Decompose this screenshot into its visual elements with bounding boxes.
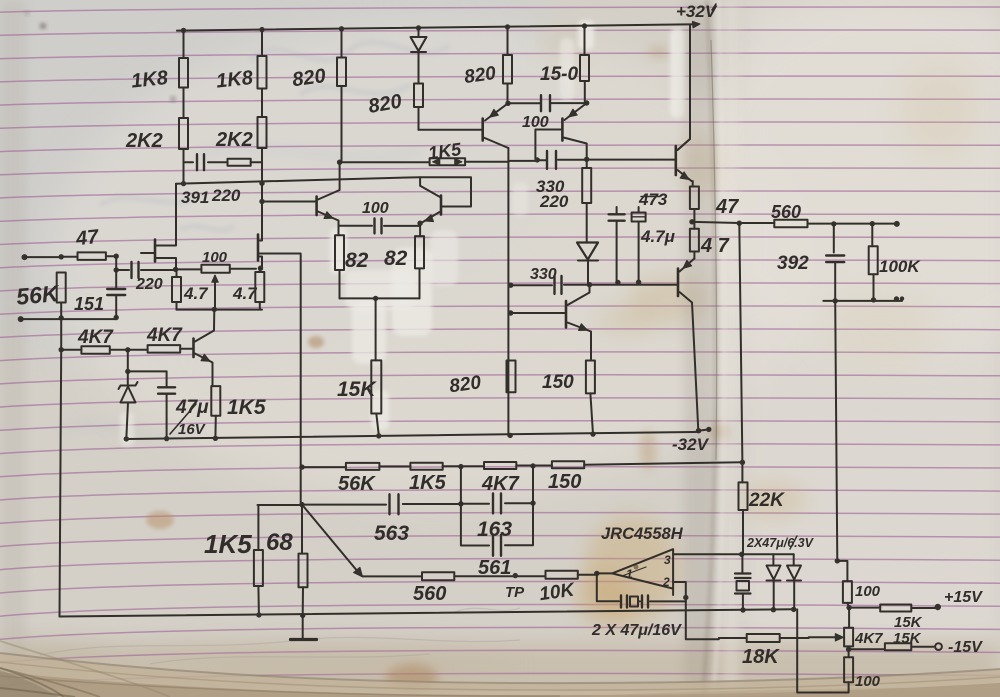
svg-text:+15V: +15V — [944, 589, 983, 606]
svg-text:22K: 22K — [748, 490, 785, 511]
svg-text:1K5: 1K5 — [227, 396, 266, 419]
svg-text:82: 82 — [384, 247, 408, 270]
svg-text:-15V: -15V — [948, 639, 983, 656]
svg-text:15-0: 15-0 — [540, 64, 578, 85]
svg-text:100: 100 — [855, 673, 881, 690]
svg-text:330: 330 — [530, 266, 557, 283]
svg-text:15K: 15K — [893, 630, 922, 647]
svg-text:1K5: 1K5 — [204, 529, 252, 559]
svg-text:473: 473 — [638, 190, 668, 209]
svg-text:100K: 100K — [879, 257, 921, 276]
svg-text:-32V: -32V — [672, 435, 710, 454]
svg-text:820: 820 — [448, 372, 483, 397]
svg-text:68: 68 — [266, 529, 293, 556]
svg-text:151: 151 — [74, 294, 104, 314]
svg-text:4K7: 4K7 — [481, 473, 520, 495]
svg-text:563: 563 — [374, 522, 409, 545]
svg-text:56K: 56K — [338, 473, 376, 495]
svg-text:16V: 16V — [178, 421, 207, 438]
svg-text:4K7: 4K7 — [77, 327, 114, 348]
svg-text:220: 220 — [211, 186, 241, 205]
svg-text:1K5: 1K5 — [409, 472, 447, 494]
svg-text:560: 560 — [413, 583, 446, 605]
svg-text:4.7: 4.7 — [183, 284, 209, 303]
svg-text:82: 82 — [345, 249, 369, 272]
svg-text:4 7: 4 7 — [700, 235, 730, 257]
svg-text:100: 100 — [362, 200, 389, 217]
svg-text:2: 2 — [662, 575, 670, 589]
svg-text:4.7: 4.7 — [232, 284, 258, 303]
svg-text:1K8: 1K8 — [215, 67, 255, 93]
svg-text:100: 100 — [202, 249, 228, 266]
svg-text:56K: 56K — [15, 280, 61, 310]
svg-text:220: 220 — [539, 192, 569, 211]
svg-text:1K8: 1K8 — [130, 67, 170, 93]
svg-text:150: 150 — [548, 471, 581, 493]
svg-text:560: 560 — [771, 202, 801, 222]
svg-text:820: 820 — [463, 63, 498, 88]
svg-text:3: 3 — [664, 553, 671, 567]
svg-text:47: 47 — [715, 196, 739, 218]
svg-text:163: 163 — [477, 518, 512, 541]
svg-text:4K7: 4K7 — [146, 325, 183, 346]
svg-text:820: 820 — [291, 65, 327, 91]
svg-text:2X47μ/6.3V: 2X47μ/6.3V — [746, 536, 815, 550]
svg-text:TP: TP — [505, 584, 525, 601]
svg-text:JRC4558H: JRC4558H — [601, 525, 684, 543]
svg-text:47: 47 — [74, 226, 100, 250]
svg-text:150: 150 — [542, 372, 574, 393]
svg-text:100: 100 — [855, 583, 881, 600]
svg-text:220: 220 — [135, 276, 163, 293]
svg-text:391: 391 — [181, 188, 209, 207]
svg-text:+32V: +32V — [676, 2, 718, 21]
svg-text:2K2: 2K2 — [125, 130, 163, 152]
svg-text:4K7: 4K7 — [854, 630, 883, 647]
svg-text:15K: 15K — [894, 614, 923, 631]
svg-text:4.7μ: 4.7μ — [640, 227, 676, 246]
svg-text:2 X 47μ/16V: 2 X 47μ/16V — [591, 622, 682, 639]
svg-text:2K2: 2K2 — [215, 129, 253, 151]
svg-text:392: 392 — [777, 253, 809, 274]
svg-text:15K: 15K — [337, 378, 377, 401]
svg-text:100: 100 — [522, 114, 549, 131]
svg-text:18K: 18K — [742, 646, 780, 668]
